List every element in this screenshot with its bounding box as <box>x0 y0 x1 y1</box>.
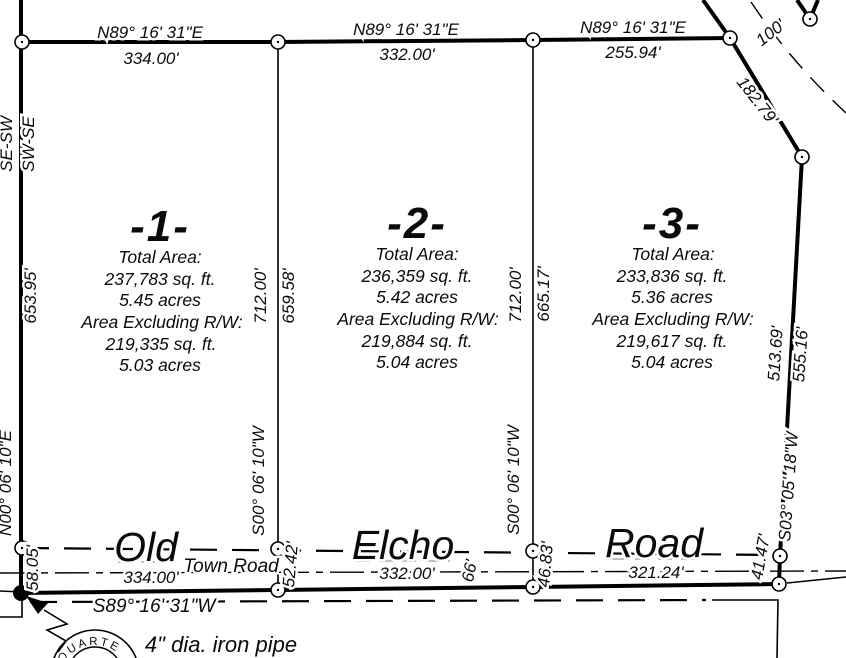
north-distance-seg3: 255.94' <box>604 43 661 62</box>
lot2-total-sqft: 236,359 sq. ft. <box>361 266 473 286</box>
lot1-excluding-sqft: 219,335 sq. ft. <box>105 334 217 354</box>
road-distance-seg2: 332.00' <box>379 564 435 583</box>
lot1-excluding-acres: 5.03 acres <box>119 355 201 375</box>
west-rw-offset: 58.05' <box>23 544 42 591</box>
lot12-west-length: 712.00' <box>251 268 270 324</box>
survey-plat-map: N89° 16' 31"E 334.00' N89° 16' 31"E 332.… <box>0 0 846 658</box>
lot1-total-sqft: 237,783 sq. ft. <box>104 269 216 289</box>
lot3-text-block: -3- Total Area: 233,836 sq. ft. 5.36 acr… <box>591 199 754 372</box>
lot1-excluding-label: Area Excluding R/W: <box>80 312 243 332</box>
lot23-bearing: S00° 06' 10"W <box>504 423 523 535</box>
west-line-length: 653.95' <box>21 268 40 324</box>
road-width-label: 66' <box>458 557 481 583</box>
lot23-west-length: 712.00' <box>506 267 525 323</box>
monument-marker <box>803 12 817 26</box>
road-south-bearing: S89° 16' 31"W <box>93 596 218 617</box>
road-distance-seg1: 334.00' <box>123 568 179 587</box>
monument-marker <box>15 35 29 49</box>
lot1-number: -1- <box>130 202 190 251</box>
lot2-text-block: -2- Total Area: 236,359 sq. ft. 5.42 acr… <box>336 199 499 372</box>
east-rw-offset: 41.47' <box>747 532 774 581</box>
lot23-rw-offset: 46.83' <box>534 540 557 588</box>
road-name-word-old: Old <box>114 524 179 570</box>
north-distance-seg2: 332.00' <box>379 45 435 64</box>
lot3-excluding-acres: 5.04 acres <box>631 352 713 372</box>
lot2-number: -2- <box>387 199 447 248</box>
section-line-east-extension <box>787 577 846 583</box>
curve-offset-label: 100' <box>752 15 789 50</box>
east-line-west-length: 513.69' <box>764 325 787 382</box>
quarter-quarter-label-east: SW-SE <box>19 116 38 172</box>
monument-marker <box>773 549 787 563</box>
southeast-parcel-corner-line <box>712 600 778 658</box>
lot1-text-block: -1- Total Area: 237,783 sq. ft. 5.45 acr… <box>80 202 243 375</box>
lot12-rw-offset: 52.42' <box>279 540 302 588</box>
north-bearing-seg3: N89° 16' 31"E <box>580 18 687 37</box>
lot2-excluding-label: Area Excluding R/W: <box>336 309 499 329</box>
east-line-east-length: 555.16' <box>789 326 812 383</box>
lot23-east-length: 665.17' <box>534 266 553 322</box>
lot3-excluding-sqft: 219,617 sq. ft. <box>616 331 728 351</box>
iron-pipe-note: 4" dia. iron pipe <box>145 632 297 657</box>
lot3-number: -3- <box>642 199 702 248</box>
road-name-word-elcho: Elcho <box>352 522 455 568</box>
north-bearing-seg1: N89° 16' 31"E <box>97 23 204 42</box>
monument-marker <box>795 150 809 164</box>
lot3-total-sqft: 233,836 sq. ft. <box>616 266 728 286</box>
lot2-excluding-sqft: 219,884 sq. ft. <box>361 331 473 351</box>
monument-marker <box>271 35 285 49</box>
lot1-total-label: Total Area: <box>118 247 201 267</box>
lot2-excluding-acres: 5.04 acres <box>376 352 458 372</box>
lot2-total-label: Total Area: <box>375 244 458 264</box>
north-bearing-seg2: N89° 16' 31"E <box>353 20 460 39</box>
road-type-label: Town Road <box>183 556 280 577</box>
lot3-total-acres: 5.36 acres <box>631 287 713 307</box>
lot12-bearing: S00° 06' 10"W <box>249 424 268 536</box>
monument-marker <box>526 33 540 47</box>
lot1-total-acres: 5.45 acres <box>119 290 201 310</box>
west-line-bearing: N00° 06' 10"E <box>0 429 15 536</box>
road-distance-seg3: 321.24' <box>628 563 684 582</box>
east-line-bearing: S03° 05' 18"W <box>775 429 802 542</box>
north-distance-seg1: 334.00' <box>123 49 179 68</box>
lot12-east-length: 659.58' <box>279 268 298 324</box>
callout-leader-squiggle <box>44 610 67 652</box>
monument-marker <box>772 577 786 591</box>
monument-marker <box>723 31 737 45</box>
lot2-total-acres: 5.42 acres <box>376 287 458 307</box>
road-name-word-road: Road <box>605 520 704 566</box>
lot3-excluding-label: Area Excluding R/W: <box>591 309 754 329</box>
lot3-total-label: Total Area: <box>631 244 714 264</box>
quarter-quarter-label-west: SE-SW <box>0 114 16 172</box>
